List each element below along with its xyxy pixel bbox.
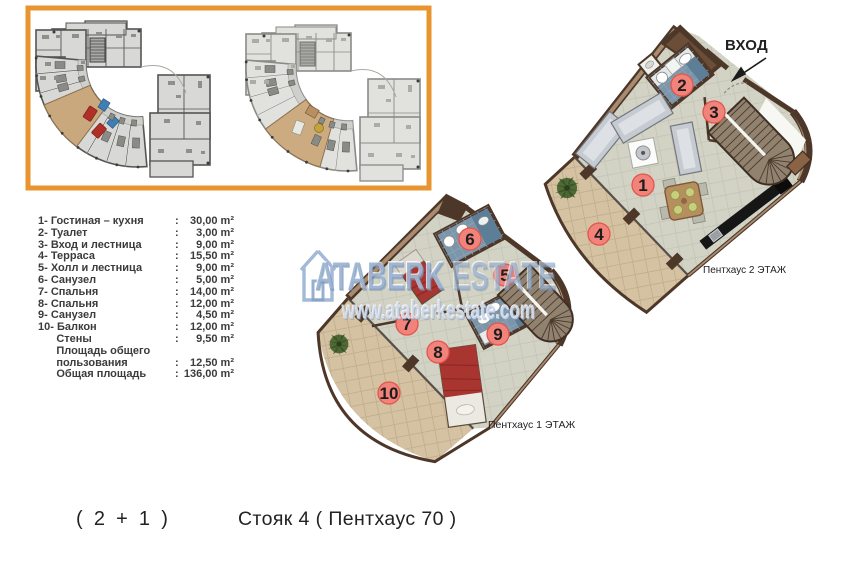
svg-text:10: 10 xyxy=(380,384,399,403)
svg-text:6: 6 xyxy=(465,230,474,249)
svg-text:9: 9 xyxy=(493,325,502,344)
svg-text:8: 8 xyxy=(433,343,442,362)
svg-text:1: 1 xyxy=(638,176,647,195)
svg-text:2: 2 xyxy=(677,76,686,95)
svg-text:4: 4 xyxy=(594,225,604,244)
svg-text:3: 3 xyxy=(709,103,718,122)
